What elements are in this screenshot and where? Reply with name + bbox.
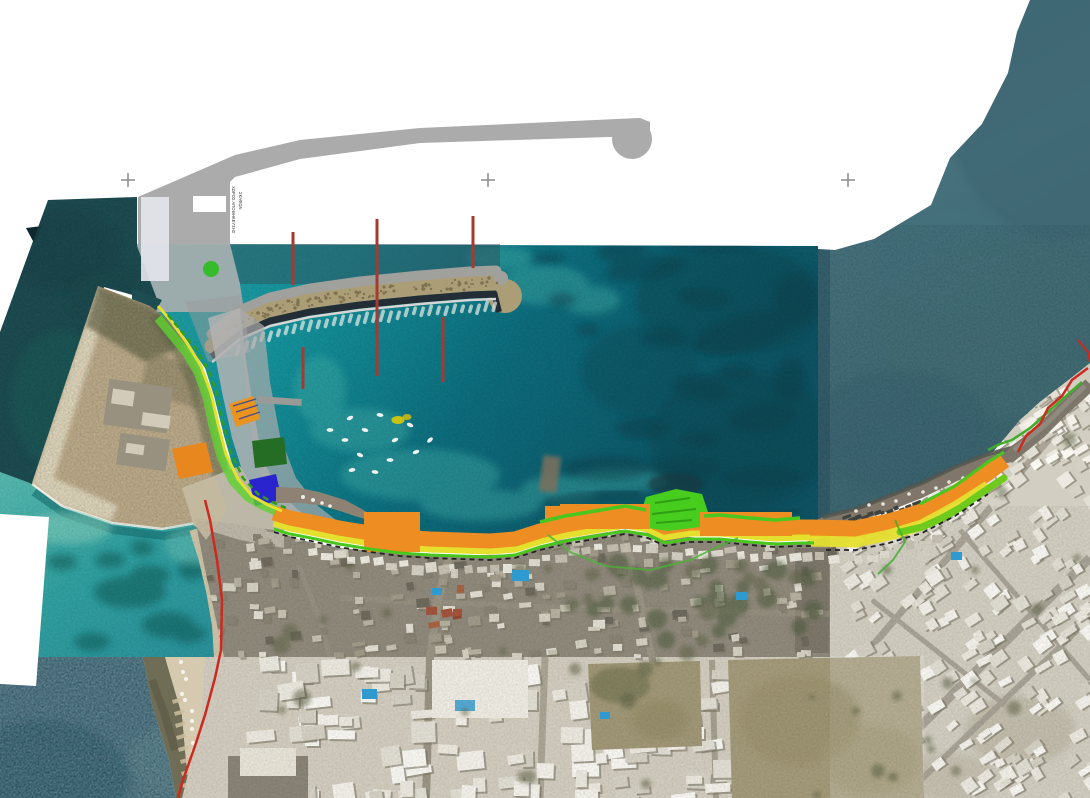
svg-text:ΧΩΡΟΣ ΑΠΟΘΗΚΕΥΣΗΣ: ΧΩΡΟΣ ΑΠΟΘΗΚΕΥΣΗΣ [231,186,236,234]
svg-text:ΣΚΑΦΩΝ: ΣΚΑΦΩΝ [238,192,243,210]
